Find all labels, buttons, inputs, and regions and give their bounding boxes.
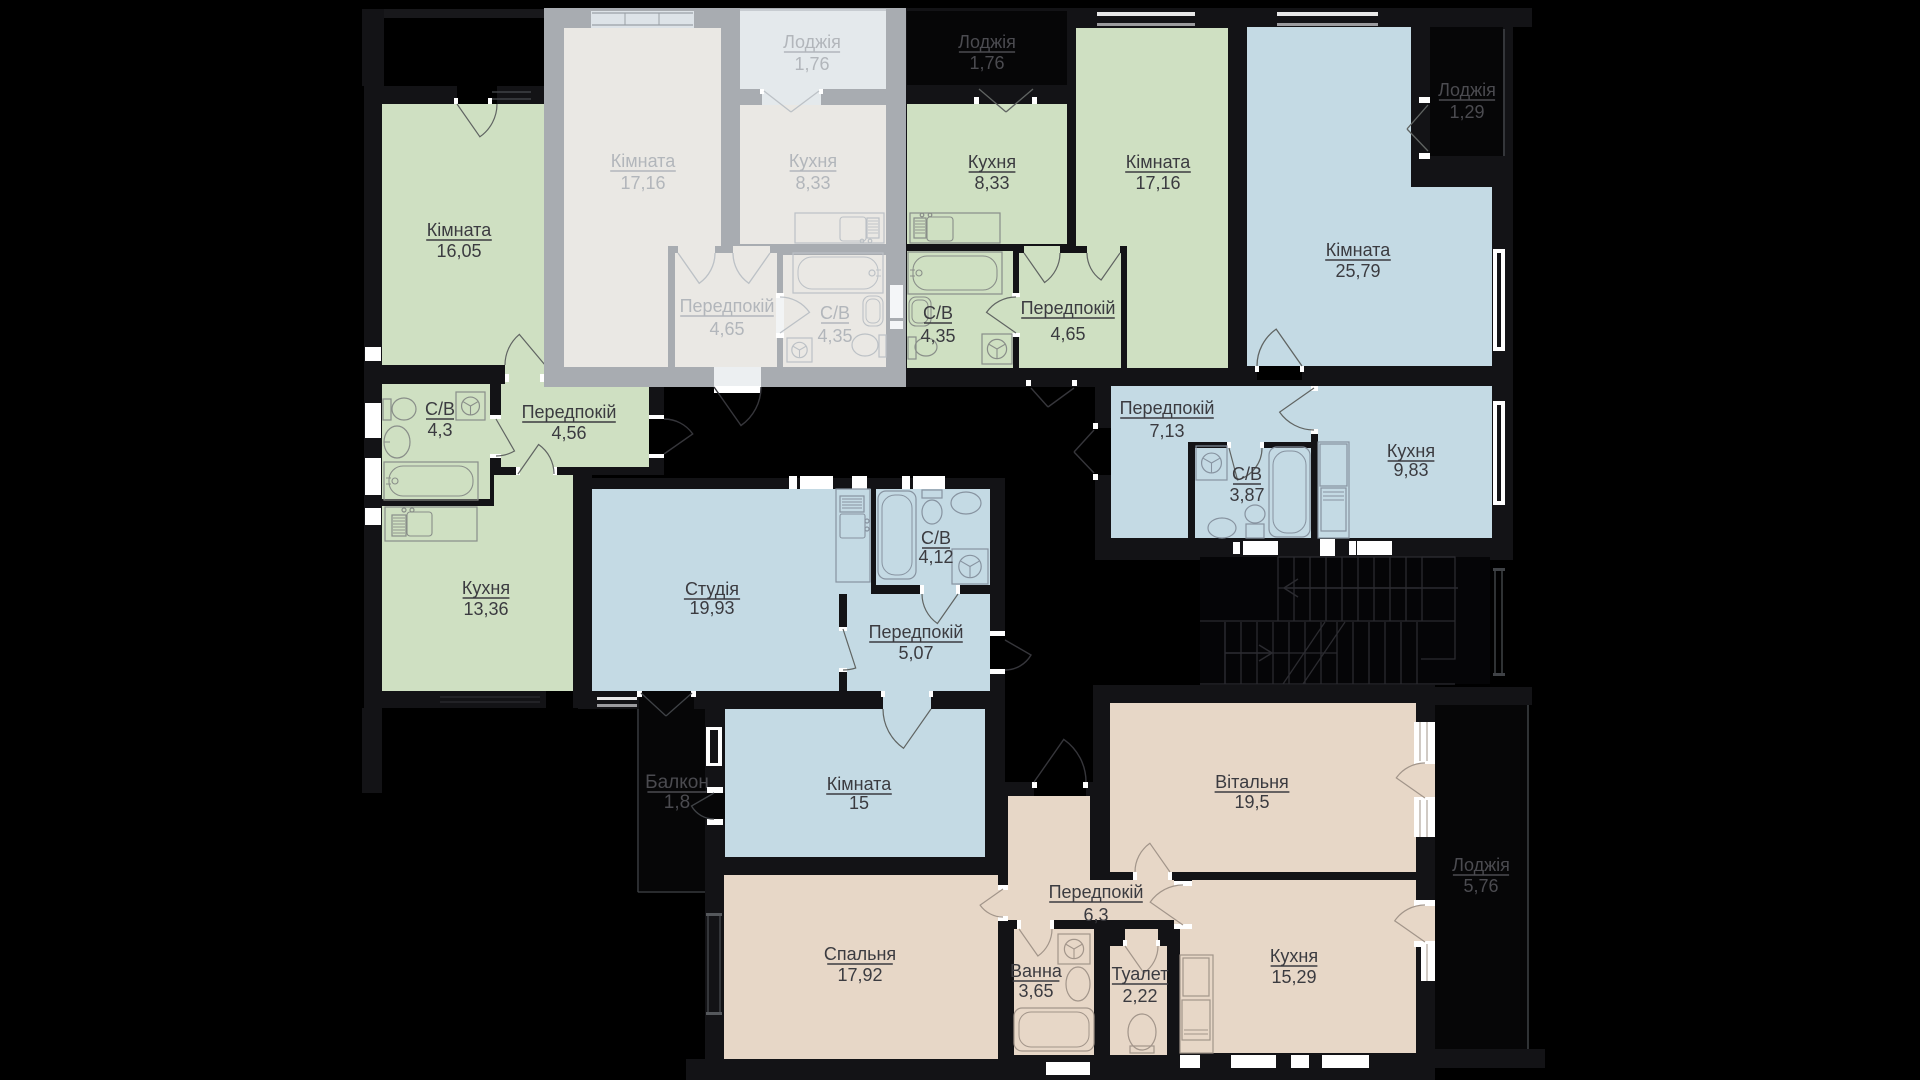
svg-text:15: 15 <box>849 793 869 813</box>
svg-text:4,35: 4,35 <box>817 326 852 346</box>
svg-text:Кімната: Кімната <box>427 220 492 240</box>
svg-text:1,76: 1,76 <box>969 53 1004 73</box>
svg-text:Студія: Студія <box>685 579 739 599</box>
svg-text:Ванна: Ванна <box>1010 961 1063 981</box>
svg-text:13,36: 13,36 <box>463 599 508 619</box>
svg-text:19,93: 19,93 <box>689 598 734 618</box>
svg-text:4,65: 4,65 <box>709 319 744 339</box>
svg-text:Лоджія: Лоджія <box>1452 855 1510 875</box>
svg-text:С/В: С/В <box>921 528 951 548</box>
svg-text:Передпокій: Передпокій <box>1049 882 1144 902</box>
svg-text:Кухня: Кухня <box>1270 946 1318 966</box>
svg-text:Лоджія: Лоджія <box>958 32 1016 52</box>
svg-text:19,5: 19,5 <box>1234 792 1269 812</box>
svg-text:Передпокій: Передпокій <box>869 622 964 642</box>
svg-text:3,87: 3,87 <box>1229 485 1264 505</box>
svg-text:4,3: 4,3 <box>427 420 452 440</box>
svg-text:Кухня: Кухня <box>789 151 837 171</box>
svg-text:Передпокій: Передпокій <box>1021 298 1116 318</box>
svg-text:16,05: 16,05 <box>436 241 481 261</box>
svg-text:5,76: 5,76 <box>1463 876 1498 896</box>
svg-text:5,07: 5,07 <box>898 643 933 663</box>
svg-text:Спальня: Спальня <box>824 944 896 964</box>
svg-text:Кімната: Кімната <box>1326 240 1391 260</box>
svg-text:17,92: 17,92 <box>837 965 882 985</box>
svg-text:3,65: 3,65 <box>1018 981 1053 1001</box>
svg-text:17,16: 17,16 <box>620 173 665 193</box>
svg-text:Балкон: Балкон <box>645 772 709 793</box>
svg-text:1,8: 1,8 <box>664 792 690 813</box>
svg-text:4,65: 4,65 <box>1050 324 1085 344</box>
svg-text:Кімната: Кімната <box>1126 152 1191 172</box>
svg-text:2,22: 2,22 <box>1122 986 1157 1006</box>
svg-text:Передпокій: Передпокій <box>1120 398 1215 418</box>
svg-text:Кімната: Кімната <box>611 151 676 171</box>
svg-text:С/В: С/В <box>1232 464 1262 484</box>
svg-text:С/В: С/В <box>923 303 953 323</box>
svg-text:25,79: 25,79 <box>1335 261 1380 281</box>
svg-text:Передпокій: Передпокій <box>522 402 617 422</box>
svg-text:С/В: С/В <box>425 399 455 419</box>
svg-text:Лоджія: Лоджія <box>1438 80 1496 100</box>
svg-text:9,83: 9,83 <box>1393 460 1428 480</box>
svg-text:6,3: 6,3 <box>1083 905 1108 925</box>
svg-text:Кухня: Кухня <box>462 578 510 598</box>
svg-text:17,16: 17,16 <box>1135 173 1180 193</box>
svg-text:4,35: 4,35 <box>920 326 955 346</box>
svg-text:1,76: 1,76 <box>794 54 829 74</box>
svg-text:4,12: 4,12 <box>918 547 953 567</box>
svg-text:15,29: 15,29 <box>1271 967 1316 987</box>
svg-text:7,13: 7,13 <box>1149 421 1184 441</box>
svg-text:С/В: С/В <box>820 303 850 323</box>
svg-text:Кімната: Кімната <box>827 774 892 794</box>
svg-text:Туалет: Туалет <box>1112 964 1169 984</box>
svg-text:8,33: 8,33 <box>974 173 1009 193</box>
svg-text:Лоджія: Лоджія <box>783 32 841 52</box>
svg-text:Кухня: Кухня <box>968 152 1016 172</box>
svg-text:8,33: 8,33 <box>795 173 830 193</box>
svg-text:Кухня: Кухня <box>1387 441 1435 461</box>
svg-text:4,56: 4,56 <box>551 423 586 443</box>
svg-text:Передпокій: Передпокій <box>680 296 775 316</box>
svg-text:1,29: 1,29 <box>1449 102 1484 122</box>
svg-text:Вітальня: Вітальня <box>1215 772 1289 792</box>
